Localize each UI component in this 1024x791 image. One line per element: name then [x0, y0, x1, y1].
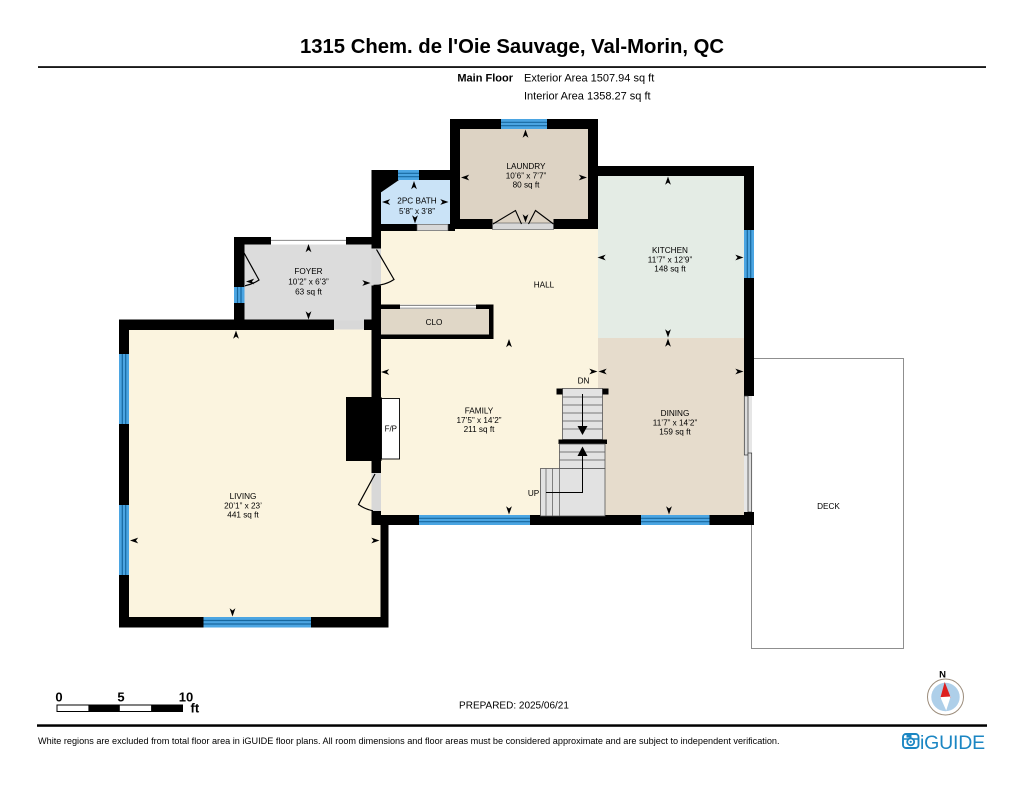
svg-text:11’7” x 14’2”: 11’7” x 14’2”	[653, 418, 698, 427]
svg-text:FOYER: FOYER	[294, 267, 322, 276]
svg-text:63 sq ft: 63 sq ft	[295, 288, 323, 297]
svg-text:CLO: CLO	[426, 318, 443, 327]
svg-text:211 sq ft: 211 sq ft	[464, 425, 496, 434]
svg-text:Interior Area 1358.27 sq ft: Interior Area 1358.27 sq ft	[524, 91, 651, 103]
svg-text:LIVING: LIVING	[230, 492, 257, 501]
svg-text:F/P: F/P	[385, 425, 397, 434]
svg-text:80 sq ft: 80 sq ft	[513, 181, 541, 190]
svg-text:17’5” x 14’2”: 17’5” x 14’2”	[456, 416, 501, 425]
svg-text:Exterior Area 1507.94 sq ft: Exterior Area 1507.94 sq ft	[524, 73, 654, 85]
svg-text:LAUNDRY: LAUNDRY	[507, 162, 547, 171]
svg-text:1315 Chem. de l'Oie Sauvage, V: 1315 Chem. de l'Oie Sauvage, Val-Morin, …	[300, 36, 724, 58]
svg-text:11’7” x 12’9”: 11’7” x 12’9”	[648, 255, 693, 264]
svg-text:N: N	[939, 670, 946, 681]
svg-text:159 sq ft: 159 sq ft	[659, 428, 691, 437]
svg-text:148 sq ft: 148 sq ft	[654, 265, 686, 274]
svg-text:iGUIDE: iGUIDE	[920, 732, 985, 754]
svg-text:441 sq ft: 441 sq ft	[227, 511, 259, 520]
svg-text:KITCHEN: KITCHEN	[652, 246, 688, 255]
svg-text:DINING: DINING	[661, 409, 690, 418]
svg-text:DECK: DECK	[817, 502, 840, 511]
svg-text:FAMILY: FAMILY	[465, 407, 494, 416]
svg-text:PREPARED: 2025/06/21: PREPARED: 2025/06/21	[459, 701, 569, 712]
svg-text:5’8” x 3’8”: 5’8” x 3’8”	[399, 207, 435, 216]
svg-text:HALL: HALL	[534, 281, 555, 290]
svg-text:10’2” x 6’3”: 10’2” x 6’3”	[288, 278, 329, 287]
svg-text:DN: DN	[578, 377, 590, 386]
svg-text:5: 5	[117, 690, 124, 705]
svg-text:10’6” x 7’7”: 10’6” x 7’7”	[506, 171, 547, 180]
svg-text:White regions are excluded fro: White regions are excluded from total fl…	[38, 736, 780, 746]
svg-text:20’1” x 23’: 20’1” x 23’	[224, 501, 262, 510]
svg-text:0: 0	[55, 690, 62, 705]
svg-text:ft: ft	[191, 701, 200, 716]
svg-text:UP: UP	[528, 489, 540, 498]
svg-text:2PC BATH: 2PC BATH	[397, 197, 437, 206]
svg-text:Main Floor: Main Floor	[457, 73, 513, 85]
